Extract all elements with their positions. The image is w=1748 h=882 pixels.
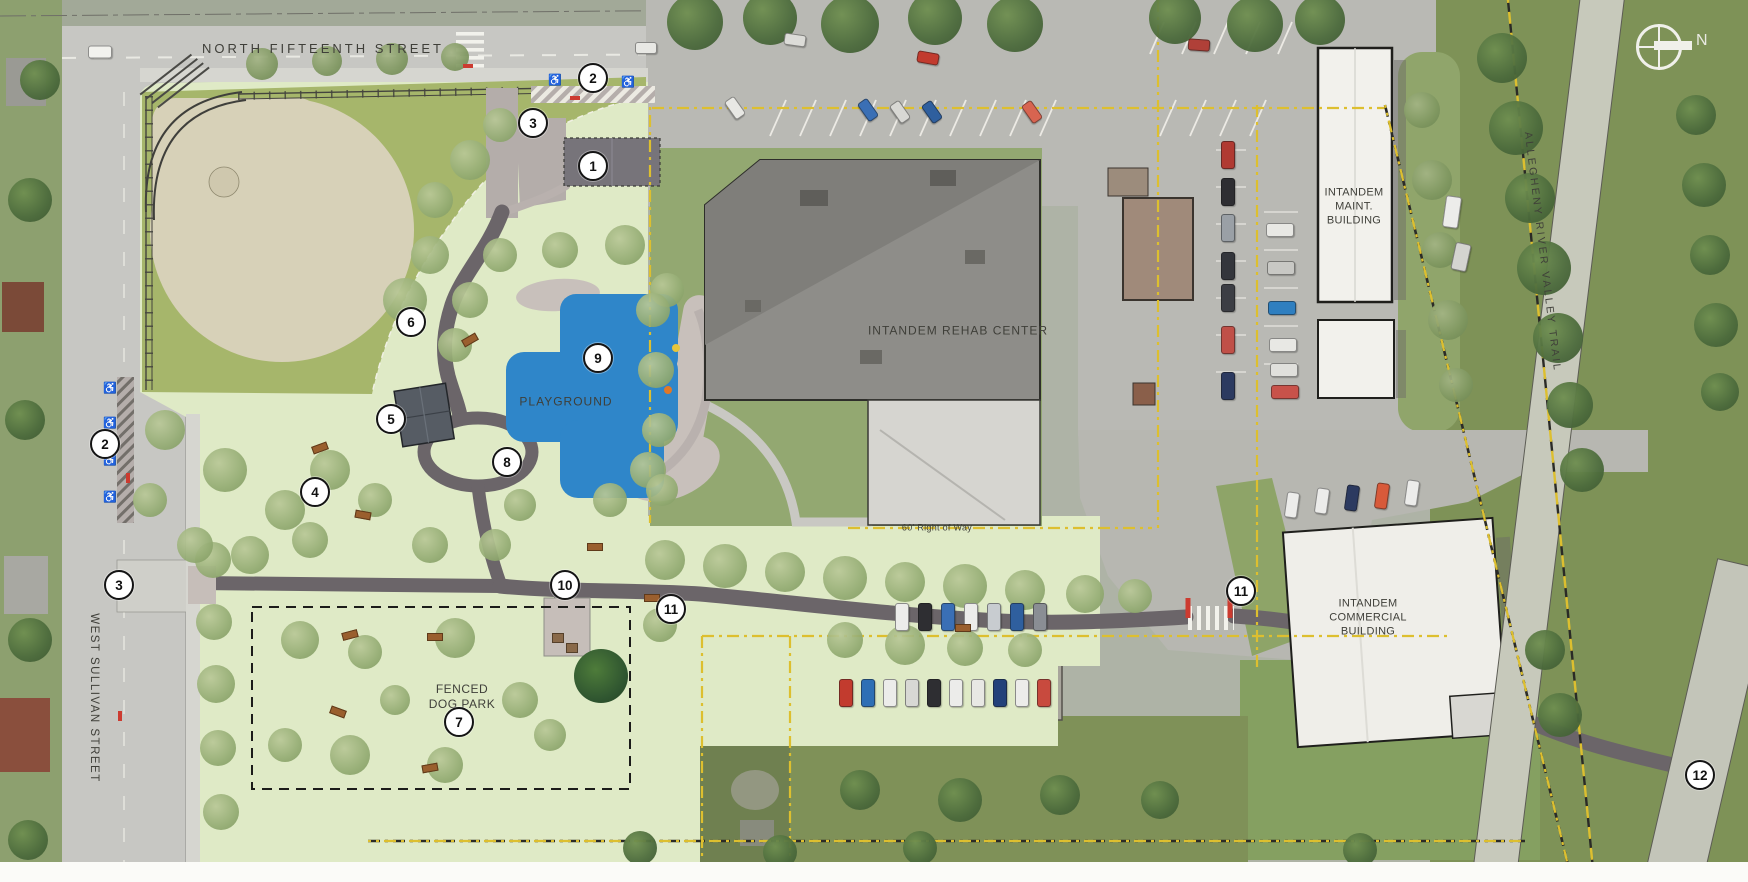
car xyxy=(1404,479,1420,507)
tree xyxy=(1066,575,1104,613)
tree xyxy=(1538,693,1582,737)
car xyxy=(883,679,897,707)
tree xyxy=(450,140,490,180)
red-curb-marking xyxy=(126,473,130,483)
car xyxy=(1188,38,1211,52)
car xyxy=(1037,679,1051,707)
car xyxy=(905,679,919,707)
tree xyxy=(765,552,805,592)
car xyxy=(88,46,112,59)
picnic-table xyxy=(552,633,564,643)
tree xyxy=(1547,382,1593,428)
tree xyxy=(203,794,239,830)
tree xyxy=(452,282,488,318)
car xyxy=(1021,100,1043,125)
sheet-bottom-margin xyxy=(0,862,1748,882)
tree xyxy=(1040,775,1080,815)
car xyxy=(1270,363,1298,377)
car xyxy=(857,98,879,123)
marker-3-north-entrance: 3 xyxy=(518,108,548,138)
tree xyxy=(638,352,674,388)
tree xyxy=(8,618,52,662)
tree xyxy=(145,410,185,450)
tree xyxy=(411,236,449,274)
tree xyxy=(1477,33,1527,83)
tree xyxy=(1428,300,1468,340)
car xyxy=(724,96,746,121)
car xyxy=(1221,284,1235,312)
label-north-fifteenth-street: NORTH FIFTEENTH STREET xyxy=(202,41,444,57)
label-playground: PLAYGROUND xyxy=(519,395,612,410)
car xyxy=(1374,482,1390,510)
bench xyxy=(955,624,971,632)
tree xyxy=(885,625,925,665)
marker-10-trail: 10 xyxy=(550,570,580,600)
tree xyxy=(380,685,410,715)
tree xyxy=(1690,235,1730,275)
car xyxy=(1221,372,1235,400)
tree xyxy=(542,232,578,268)
tree xyxy=(645,540,685,580)
tree xyxy=(417,182,453,218)
tree xyxy=(8,820,48,860)
tree xyxy=(479,529,511,561)
label-intandem-maint-building: INTANDEM MAINT. BUILDING xyxy=(1324,186,1383,227)
marker-2-north-street: 2 xyxy=(578,63,608,93)
car xyxy=(1344,484,1360,512)
tree xyxy=(1682,163,1726,207)
tree xyxy=(8,178,52,222)
marker-11-crosswalk: 11 xyxy=(1226,576,1256,606)
car xyxy=(1271,385,1299,399)
tree xyxy=(177,527,213,563)
accessible-parking-icon: ♿ xyxy=(621,78,635,89)
car xyxy=(1015,679,1029,707)
marker-3-west-street: 3 xyxy=(104,570,134,600)
car xyxy=(1267,261,1295,275)
car xyxy=(1314,487,1330,515)
bench xyxy=(329,706,347,719)
car xyxy=(1221,141,1235,169)
tree xyxy=(703,544,747,588)
tree xyxy=(885,562,925,602)
tree xyxy=(20,60,60,100)
annotation-overlay: N 2316952843101111712NORTH FIFTEENTH STR… xyxy=(0,0,1748,882)
tree xyxy=(292,522,328,558)
tree xyxy=(840,770,880,810)
car xyxy=(971,679,985,707)
tree xyxy=(823,556,867,600)
accessible-parking-icon: ♿ xyxy=(103,384,117,395)
tree xyxy=(636,293,670,327)
compass-north-arrow-icon xyxy=(1654,41,1692,50)
car xyxy=(927,679,941,707)
accessible-parking-icon: ♿ xyxy=(103,493,117,504)
car xyxy=(1221,214,1235,242)
marker-7-dog-park: 7 xyxy=(444,707,474,737)
red-curb-marking xyxy=(463,64,473,68)
tree xyxy=(667,0,723,50)
car xyxy=(861,679,875,707)
marker-12-trail-connection: 12 xyxy=(1685,760,1715,790)
tree xyxy=(947,630,983,666)
tree xyxy=(197,665,235,703)
tree xyxy=(203,448,247,492)
tree xyxy=(265,490,305,530)
tree xyxy=(268,728,302,762)
site-plan-canvas: N 2316952843101111712NORTH FIFTEENTH STR… xyxy=(0,0,1748,882)
tree xyxy=(1412,160,1452,200)
marker-1-parking: 1 xyxy=(578,151,608,181)
label-intandem-commercial-building: INTANDEM COMMERCIAL BUILDING xyxy=(1329,597,1407,638)
label-intandem-rehab-center: INTANDEM REHAB CENTER xyxy=(868,324,1048,339)
tree xyxy=(1008,633,1042,667)
car xyxy=(1221,252,1235,280)
marker-11-dog-park: 11 xyxy=(656,594,686,624)
car xyxy=(1033,603,1047,631)
tree xyxy=(5,400,45,440)
tree xyxy=(1676,95,1716,135)
picnic-table xyxy=(566,643,578,653)
tree xyxy=(1525,630,1565,670)
tree xyxy=(642,413,676,447)
car xyxy=(1221,326,1235,354)
tree xyxy=(133,483,167,517)
car xyxy=(987,603,1001,631)
tree xyxy=(1560,448,1604,492)
tree xyxy=(348,635,382,669)
tree xyxy=(1149,0,1201,44)
tree xyxy=(1439,368,1473,402)
red-curb-marking xyxy=(570,96,580,100)
tree xyxy=(908,0,962,45)
tree xyxy=(330,735,370,775)
tree xyxy=(504,489,536,521)
palm-tree xyxy=(574,649,628,703)
car xyxy=(1266,223,1294,237)
accessible-parking-icon: ♿ xyxy=(103,419,117,430)
accessible-parking-icon: ♿ xyxy=(548,76,562,87)
tree xyxy=(483,108,517,142)
red-curb-marking xyxy=(118,711,122,721)
car xyxy=(1269,338,1297,352)
bench xyxy=(587,543,603,551)
car xyxy=(993,679,1007,707)
marker-2-west-street: 2 xyxy=(90,429,120,459)
tree xyxy=(231,536,269,574)
tree xyxy=(1694,303,1738,347)
tree xyxy=(196,604,232,640)
car xyxy=(839,679,853,707)
tree xyxy=(938,778,982,822)
car xyxy=(1268,301,1296,315)
bench xyxy=(427,633,443,641)
car xyxy=(921,100,943,125)
label-west-sullivan-street: WEST SULLIVAN STREET xyxy=(87,613,101,783)
car xyxy=(1284,491,1300,519)
tree xyxy=(1227,0,1283,52)
car xyxy=(1442,195,1462,229)
tree xyxy=(502,682,538,718)
marker-4-lawn: 4 xyxy=(300,477,330,507)
car xyxy=(941,603,955,631)
car xyxy=(949,679,963,707)
marker-8-plaza: 8 xyxy=(492,447,522,477)
car xyxy=(1221,178,1235,206)
car xyxy=(1010,603,1024,631)
marker-9-playground: 9 xyxy=(583,343,613,373)
car xyxy=(889,100,911,125)
car xyxy=(918,603,932,631)
compass-north-label: N xyxy=(1696,32,1708,50)
tree xyxy=(1404,92,1440,128)
tree xyxy=(412,527,448,563)
tree xyxy=(646,474,678,506)
car xyxy=(635,42,657,54)
tree xyxy=(483,238,517,272)
tree xyxy=(623,831,657,865)
tree xyxy=(281,621,319,659)
tree xyxy=(1295,0,1345,45)
tree xyxy=(1701,373,1739,411)
marker-6-path: 6 xyxy=(396,307,426,337)
tree xyxy=(821,0,879,53)
tree xyxy=(1141,781,1179,819)
tree xyxy=(200,730,236,766)
tree xyxy=(903,831,937,865)
car xyxy=(783,33,806,48)
tree xyxy=(987,0,1043,52)
label-right-of-way: 60' Right of Way xyxy=(902,522,972,533)
tree xyxy=(943,564,987,608)
tree xyxy=(593,483,627,517)
compass: N xyxy=(1630,22,1748,70)
marker-5-pavilion: 5 xyxy=(376,404,406,434)
car xyxy=(895,603,909,631)
tree xyxy=(1118,579,1152,613)
tree xyxy=(534,719,566,751)
car xyxy=(916,50,940,66)
tree xyxy=(605,225,645,265)
bench xyxy=(354,510,371,521)
red-curb-marking xyxy=(1186,598,1191,618)
tree xyxy=(827,622,863,658)
